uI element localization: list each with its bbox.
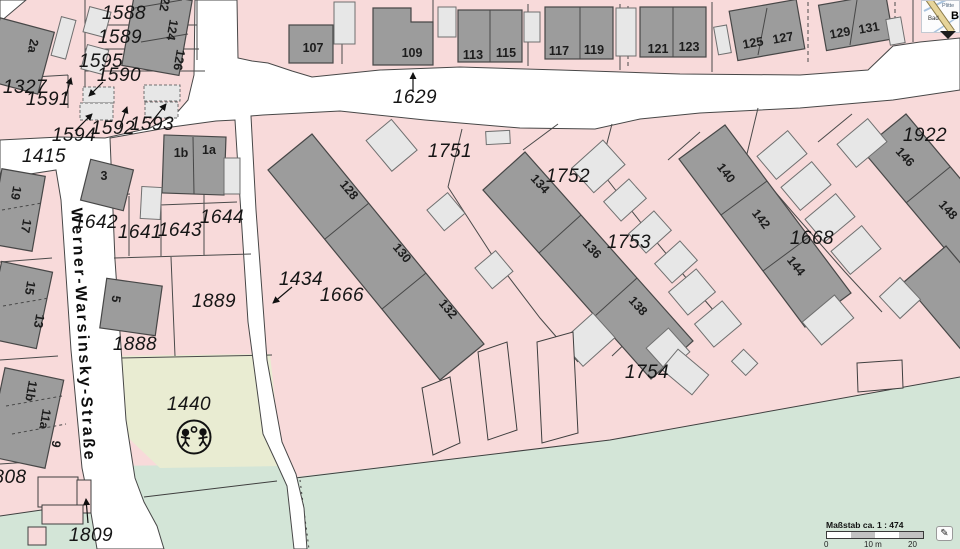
building-2a: [0, 18, 54, 94]
building-19-17: [0, 169, 45, 251]
scalebar-segment: [875, 532, 899, 538]
building-15-13: [0, 261, 53, 348]
scalebar-tick-20m: 20 m: [908, 540, 924, 549]
building-5: [100, 278, 162, 335]
inset-label-bad: Bad: [928, 16, 939, 22]
cadastral-map-canvas[interactable]: Werner-Warsinsky-Straße 1588158915951590…: [0, 0, 960, 549]
building-107: [289, 25, 333, 63]
scalebar-segment: [827, 532, 851, 538]
building-11b-11a-9: [0, 368, 64, 469]
scalebar-segment: [899, 532, 923, 538]
building-117-119: [545, 7, 613, 59]
edit-pencil-icon[interactable]: ✎: [936, 526, 953, 541]
overview-inset-map[interactable]: Plitte Bad B: [921, 0, 960, 33]
scalebar-bar: [826, 531, 924, 539]
scalebar: Maßstab ca. 1 : 474 0 10 m 20 m ✎: [824, 520, 960, 548]
inset-pointer-triangle: [940, 31, 956, 39]
building-clipped-southeast: [904, 246, 960, 372]
scalebar-tick-10m: 10 m: [864, 540, 882, 549]
building-122-124-126: [122, 0, 192, 75]
map-graphics: [0, 0, 960, 549]
scalebar-tick-0: 0: [824, 540, 828, 549]
inset-label-b: B: [951, 10, 959, 22]
scalebar-segment: [851, 532, 875, 538]
inset-label-plitte: Plitte: [942, 3, 954, 9]
scalebar-title: Maßstab ca. 1 : 474: [826, 520, 903, 530]
building-109: [373, 8, 433, 65]
